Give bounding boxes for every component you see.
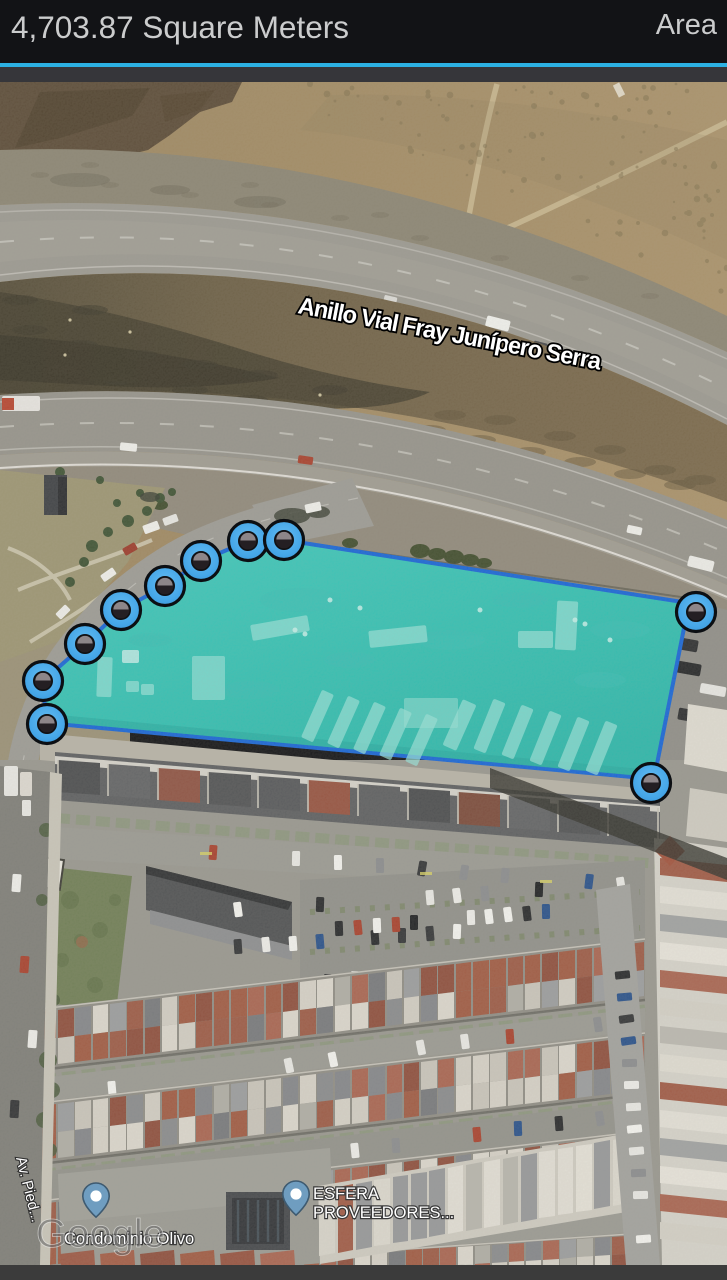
svg-text:Google: Google <box>36 1212 165 1256</box>
svg-text:PROVEEDORES...: PROVEEDORES... <box>313 1204 454 1222</box>
svg-text:ESFERA: ESFERA <box>313 1185 379 1203</box>
